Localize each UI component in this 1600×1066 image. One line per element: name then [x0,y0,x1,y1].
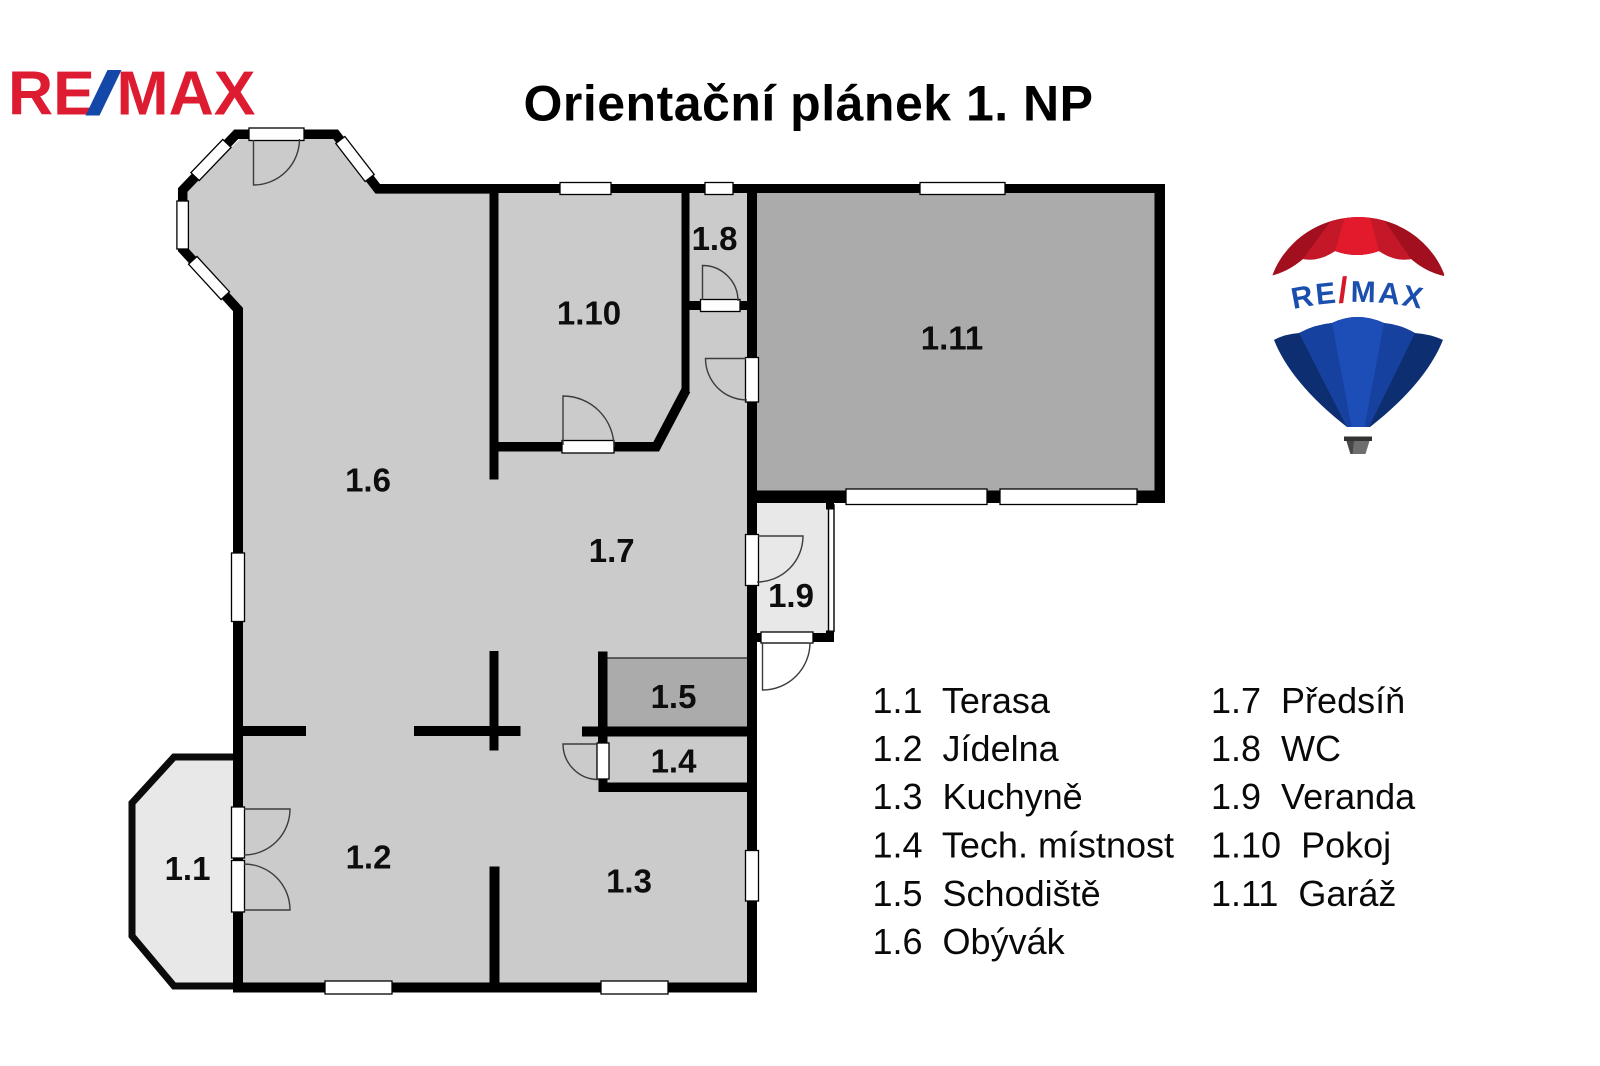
svg-text:1.2: 1.2 [346,839,392,876]
svg-text:1.6: 1.6 [345,462,391,499]
svg-text:1.5 Schodiště: 1.5 Schodiště [873,873,1101,914]
svg-text:1.7 Předsíň: 1.7 Předsíň [1211,680,1405,721]
svg-text:1.8: 1.8 [692,220,738,257]
svg-text:1.9 Veranda: 1.9 Veranda [1211,776,1416,817]
svg-text:1.6 Obývák: 1.6 Obývák [873,921,1066,962]
svg-text:1.11: 1.11 [921,320,983,357]
svg-text:1.11 Garáž: 1.11 Garáž [1211,873,1396,914]
svg-text:MAX: MAX [117,59,256,129]
svg-text:1.3 Kuchyně: 1.3 Kuchyně [873,776,1083,817]
svg-text:1.1: 1.1 [165,850,211,887]
svg-text:1.10 Pokoj: 1.10 Pokoj [1211,825,1391,866]
svg-text:1.1 Terasa: 1.1 Terasa [873,680,1051,721]
svg-text:1.9: 1.9 [768,577,814,614]
svg-text:1.2 Jídelna: 1.2 Jídelna [873,728,1060,769]
svg-text:Orientační plánek 1. NP: Orientační plánek 1. NP [523,76,1093,132]
svg-text:1.10: 1.10 [557,295,621,332]
svg-text:1.7: 1.7 [589,532,635,569]
svg-text:1.4 Tech. místnost: 1.4 Tech. místnost [873,825,1174,866]
svg-text:RE: RE [8,59,95,129]
svg-text:1.3: 1.3 [606,863,652,900]
svg-text:1.8 WC: 1.8 WC [1211,728,1341,769]
svg-text:1.5: 1.5 [651,678,697,715]
svg-text:1.4: 1.4 [651,743,698,780]
